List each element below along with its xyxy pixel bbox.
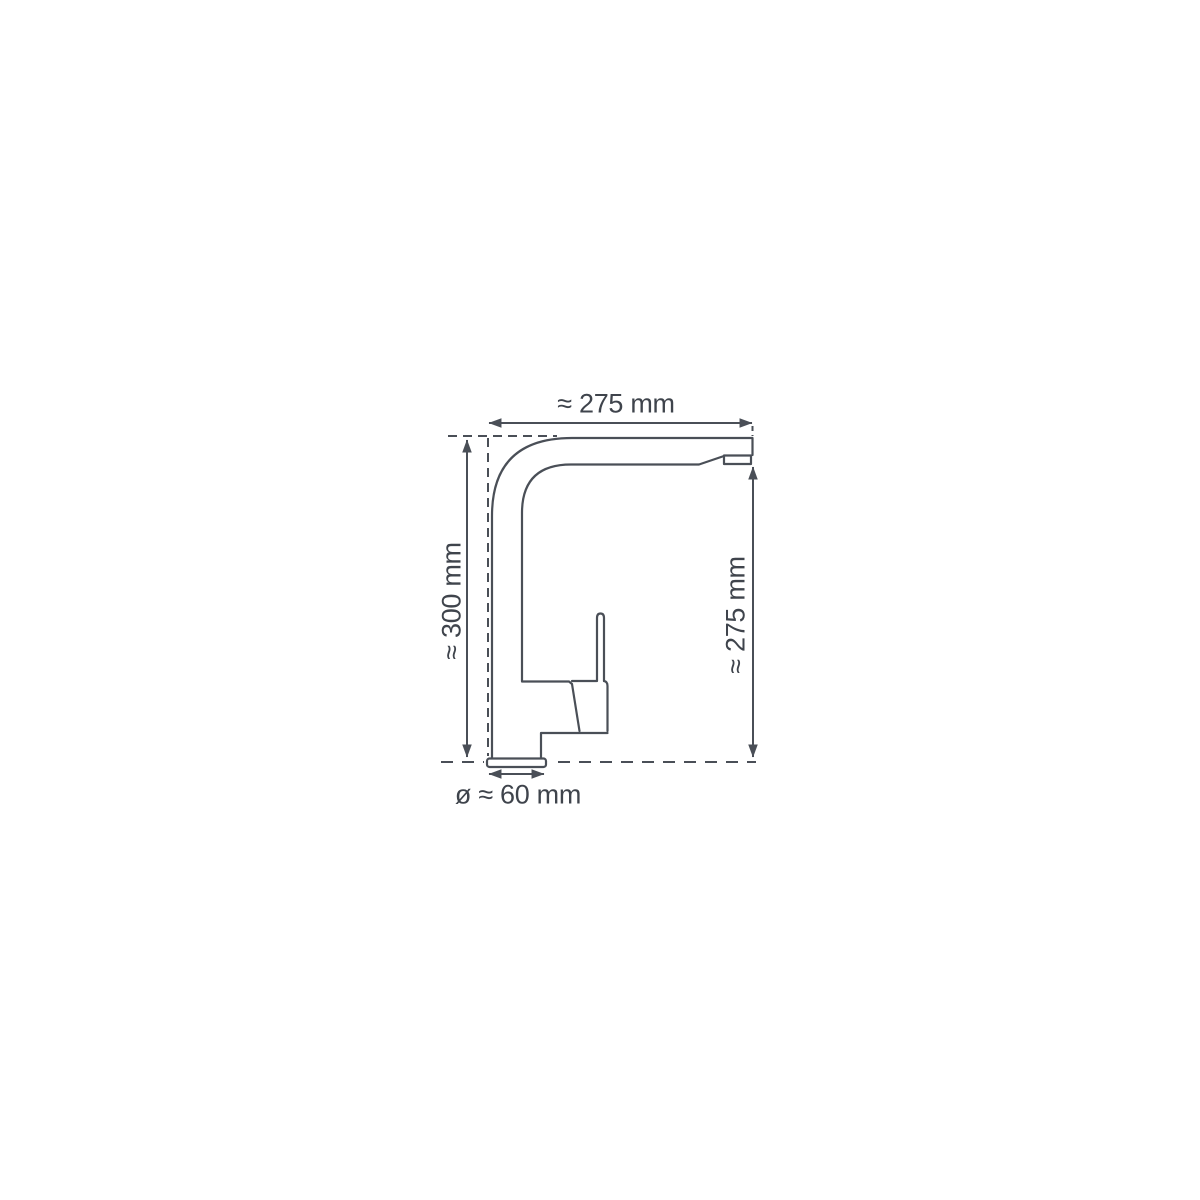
faucet-base-section — [541, 733, 608, 758]
left-height-label: ≈ 300 mm — [439, 542, 466, 659]
top-width-label: ≈ 275 mm — [557, 391, 674, 418]
faucet-spout-underside — [522, 456, 724, 681]
faucet-body-ledge — [522, 682, 580, 732]
faucet-handle-lever — [597, 614, 604, 682]
technical-drawing-svg — [0, 0, 1200, 1200]
right-height-label: ≈ 275 mm — [723, 556, 750, 673]
faucet-outer-profile — [492, 438, 753, 758]
base-diameter-label: ø ≈ 60 mm — [455, 782, 581, 809]
faucet-aerator-outlet — [724, 456, 751, 465]
faucet-base-plate — [487, 759, 546, 768]
faucet-dimension-diagram: ≈ 275 mm ≈ 300 mm ≈ 275 mm ø ≈ 60 mm — [0, 0, 1200, 1200]
